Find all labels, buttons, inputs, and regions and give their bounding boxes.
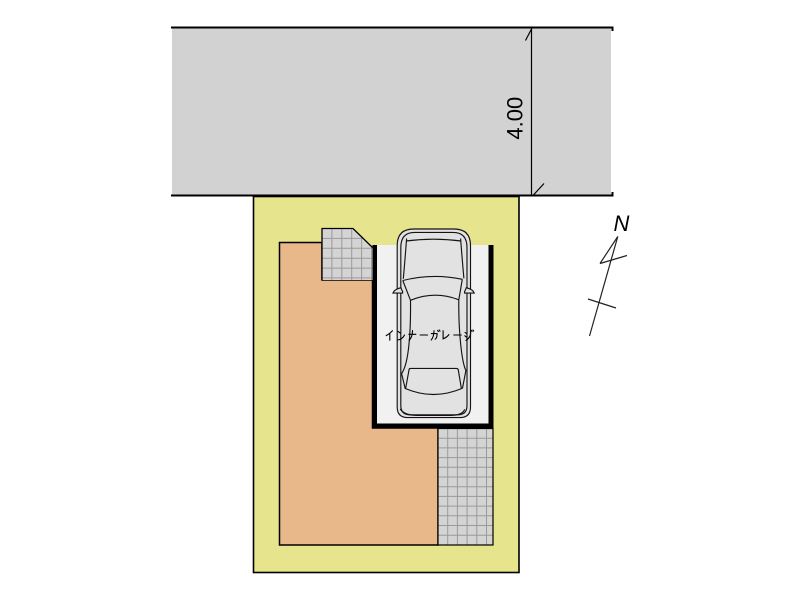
svg-text:N: N (614, 211, 630, 236)
svg-text:4.00: 4.00 (502, 97, 527, 140)
